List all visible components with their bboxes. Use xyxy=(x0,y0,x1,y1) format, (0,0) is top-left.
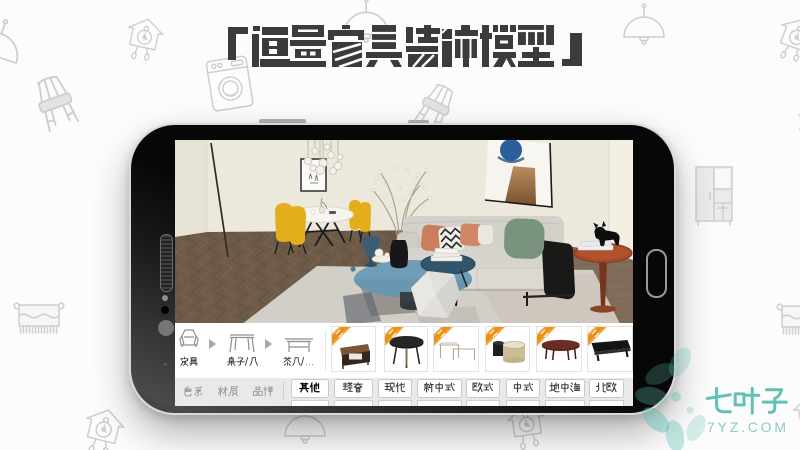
svg-text:7YZ.COM: 7YZ.COM xyxy=(707,419,789,435)
